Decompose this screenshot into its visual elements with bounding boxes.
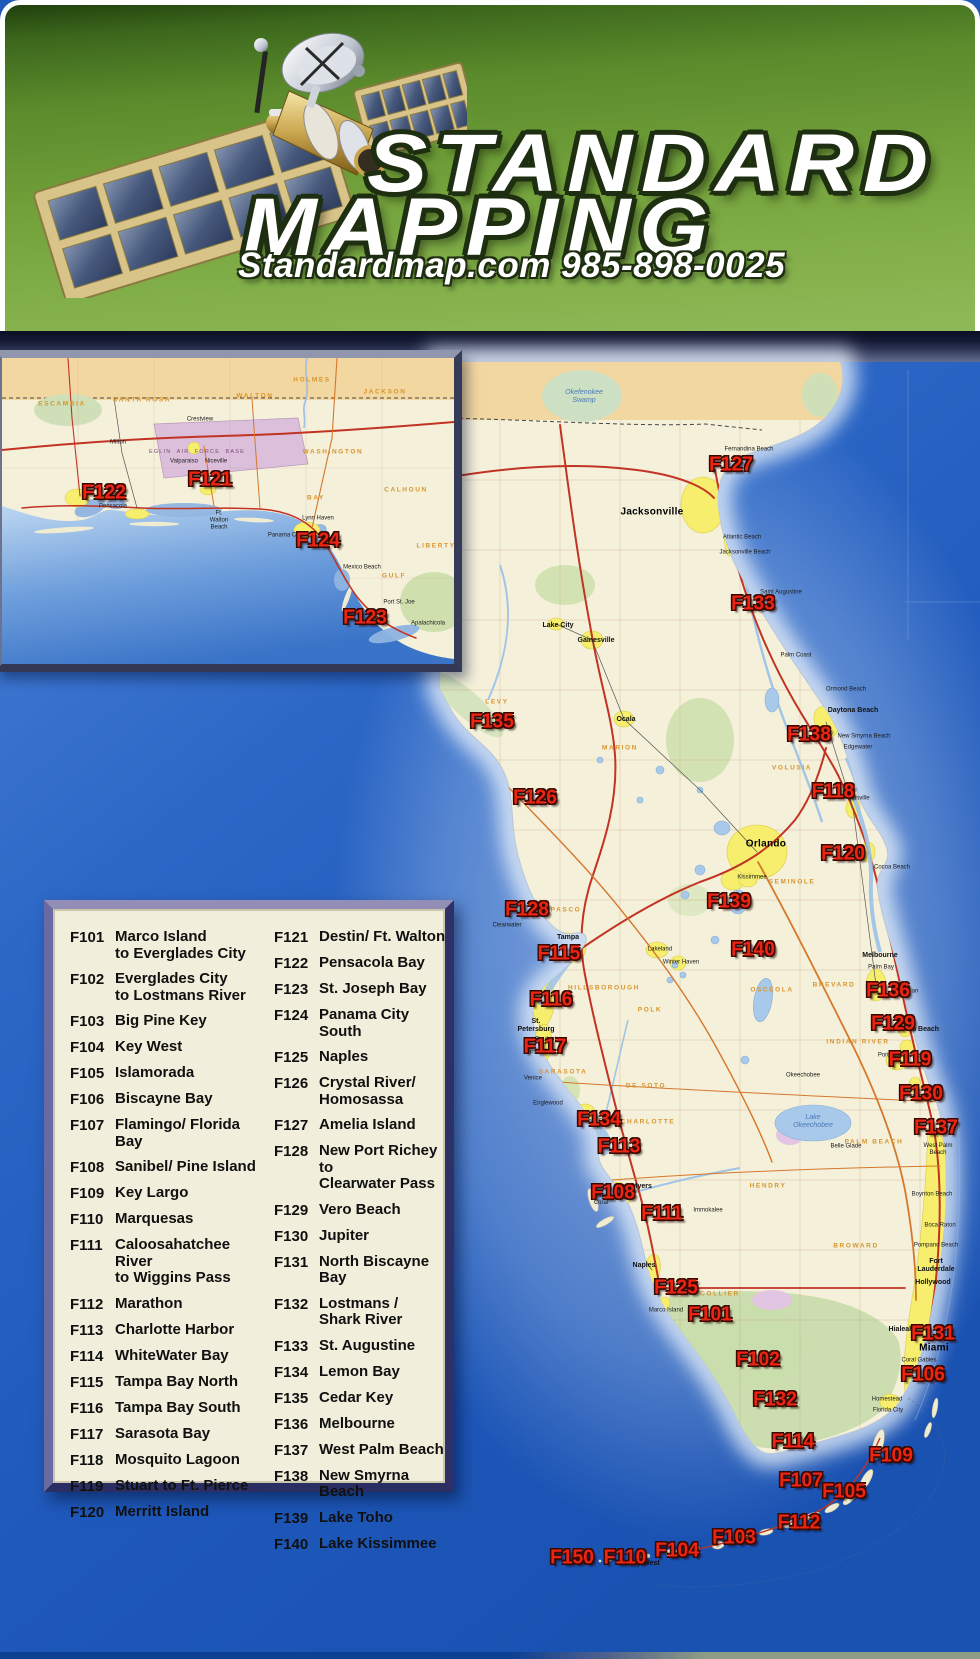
legend-code: F111 — [70, 1237, 115, 1287]
legend-code: F128 — [274, 1143, 319, 1193]
legend-entry-F136: F136Melbourne — [274, 1416, 450, 1433]
legend-name: Sanibel/ Pine Island — [115, 1159, 256, 1176]
map-label-F104[interactable]: F104 — [655, 1540, 699, 1563]
legend-name: Tampa Bay North — [115, 1374, 238, 1391]
legend-name: Amelia Island — [319, 1117, 416, 1134]
legend-name: Charlotte Harbor — [115, 1322, 234, 1339]
legend-name: Jupiter — [319, 1228, 369, 1245]
legend-name: Vero Beach — [319, 1202, 401, 1219]
legend-code: F126 — [274, 1075, 319, 1108]
map-label-F108[interactable]: F108 — [591, 1182, 635, 1205]
legend-entry-F131: F131North Biscayne Bay — [274, 1254, 450, 1287]
legend-entry-F118: F118Mosquito Lagoon — [70, 1452, 260, 1469]
map-label-F140[interactable]: F140 — [731, 939, 775, 962]
legend-name: Panama City South — [319, 1007, 450, 1040]
legend-name: Marco Island to Everglades City — [115, 929, 246, 962]
legend-code: F103 — [70, 1013, 115, 1030]
map-label-F102[interactable]: F102 — [736, 1349, 780, 1372]
legend-name: Lostmans / Shark River — [319, 1296, 402, 1329]
legend-name: Stuart to Ft. Pierce — [115, 1478, 248, 1495]
legend-name: Marathon — [115, 1296, 183, 1313]
legend-entry-F115: F115Tampa Bay North — [70, 1374, 260, 1391]
legend-code: F123 — [274, 981, 319, 998]
map-label-F121[interactable]: F121 — [188, 469, 232, 492]
legend-name: Lake Toho — [319, 1510, 393, 1527]
legend-entry-F122: F122Pensacola Bay — [274, 955, 450, 972]
legend-code: F110 — [70, 1211, 115, 1228]
legend-entry-F130: F130Jupiter — [274, 1228, 450, 1245]
legend-entry-F110: F110Marquesas — [70, 1211, 260, 1228]
page: STANDARD MAPPING Standardmap.com 985-898… — [0, 0, 980, 1659]
legend-entry-F133: F133St. Augustine — [274, 1338, 450, 1355]
legend-name: St. Joseph Bay — [319, 981, 427, 998]
legend-name: Everglades City to Lostmans River — [115, 971, 246, 1004]
map-label-F129[interactable]: F129 — [871, 1013, 915, 1036]
legend-name: Key Largo — [115, 1185, 188, 1202]
legend-entry-F104: F104Key West — [70, 1039, 260, 1056]
map-label-F132[interactable]: F132 — [753, 1389, 797, 1412]
legend-entry-F123: F123St. Joseph Bay — [274, 981, 450, 998]
legend-name: Sarasota Bay — [115, 1426, 210, 1443]
legend-entry-F135: F135Cedar Key — [274, 1390, 450, 1407]
legend-name: Merritt Island — [115, 1504, 209, 1521]
legend-code: F137 — [274, 1442, 319, 1459]
legend-entry-F106: F106Biscayne Bay — [70, 1091, 260, 1108]
legend-code: F108 — [70, 1159, 115, 1176]
map-label-F106[interactable]: F106 — [901, 1364, 945, 1387]
map-label-F111[interactable]: F111 — [641, 1203, 683, 1226]
map-label-F116[interactable]: F116 — [530, 989, 573, 1012]
map-label-F101[interactable]: F101 — [688, 1304, 732, 1327]
legend-code: F101 — [70, 929, 115, 962]
legend-entry-F116: F116Tampa Bay South — [70, 1400, 260, 1417]
legend-code: F117 — [70, 1426, 115, 1443]
bottom-edge-strip — [0, 1652, 980, 1659]
legend-entry-F121: F121Destin/ Ft. Walton — [274, 929, 450, 946]
legend-name: St. Augustine — [319, 1338, 415, 1355]
legend-name: Lemon Bay — [319, 1364, 400, 1381]
legend-code: F136 — [274, 1416, 319, 1433]
legend-name: WhiteWater Bay — [115, 1348, 229, 1365]
legend-name: Tampa Bay South — [115, 1400, 241, 1417]
map-label-F137[interactable]: F137 — [914, 1117, 958, 1140]
legend-code: F124 — [274, 1007, 319, 1040]
legend-entry-F103: F103Big Pine Key — [70, 1013, 260, 1030]
map-label-F133[interactable]: F133 — [731, 593, 775, 616]
legend-code: F122 — [274, 955, 319, 972]
legend-name: Destin/ Ft. Walton — [319, 929, 445, 946]
legend-entry-F140: F140Lake Kissimmee — [274, 1536, 450, 1553]
legend-name: Mosquito Lagoon — [115, 1452, 240, 1469]
legend-name: Lake Kissimmee — [319, 1536, 437, 1553]
legend-code: F115 — [70, 1374, 115, 1391]
legend-code: F129 — [274, 1202, 319, 1219]
legend-entry-F112: F112Marathon — [70, 1296, 260, 1313]
legend-code: F140 — [274, 1536, 319, 1553]
legend-code: F125 — [274, 1049, 319, 1066]
legend-code: F133 — [274, 1338, 319, 1355]
legend-code: F113 — [70, 1322, 115, 1339]
legend-name: Marquesas — [115, 1211, 193, 1228]
legend-code: F127 — [274, 1117, 319, 1134]
map-label-F117[interactable]: F117 — [524, 1036, 567, 1059]
map-label-F126[interactable]: F126 — [513, 787, 557, 810]
legend-entry-F137: F137West Palm Beach — [274, 1442, 450, 1459]
legend-entry-F119: F119Stuart to Ft. Pierce — [70, 1478, 260, 1495]
legend-code: F118 — [70, 1452, 115, 1469]
map-label-F110[interactable]: F110 — [604, 1547, 647, 1570]
legend-code: F130 — [274, 1228, 319, 1245]
legend-name: New Port Richey to Clearwater Pass — [319, 1143, 450, 1193]
legend-code: F119 — [70, 1478, 115, 1495]
legend-entry-F113: F113Charlotte Harbor — [70, 1322, 260, 1339]
legend-name: New Smyrna Beach — [319, 1468, 450, 1501]
map-label-F124[interactable]: F124 — [296, 530, 340, 553]
legend-code: F104 — [70, 1039, 115, 1056]
legend-code: F116 — [70, 1400, 115, 1417]
map-label-F107[interactable]: F107 — [779, 1470, 823, 1493]
legend-name: Caloosahatchee River to Wiggins Pass — [115, 1237, 260, 1287]
map-label-F138[interactable]: F138 — [787, 724, 831, 747]
map-label-F130[interactable]: F130 — [899, 1083, 943, 1106]
map-label-F131[interactable]: F131 — [911, 1323, 955, 1346]
legend-name: North Biscayne Bay — [319, 1254, 450, 1287]
map-label-F125[interactable]: F125 — [654, 1277, 698, 1300]
legend-entry-F134: F134Lemon Bay — [274, 1364, 450, 1381]
map-label-F119[interactable]: F119 — [889, 1049, 932, 1072]
legend-code: F139 — [274, 1510, 319, 1527]
legend-entry-F127: F127Amelia Island — [274, 1117, 450, 1134]
map-label-F109[interactable]: F109 — [869, 1445, 913, 1468]
legend-name: Melbourne — [319, 1416, 395, 1433]
legend-code: F102 — [70, 971, 115, 1004]
legend-code: F131 — [274, 1254, 319, 1287]
map-label-F112[interactable]: F112 — [778, 1512, 821, 1535]
legend-code: F105 — [70, 1065, 115, 1082]
legend-entry-F126: F126Crystal River/ Homosassa — [274, 1075, 450, 1108]
legend-entry-F117: F117Sarasota Bay — [70, 1426, 260, 1443]
legend-entry-F139: F139Lake Toho — [274, 1510, 450, 1527]
legend-entry-F125: F125Naples — [274, 1049, 450, 1066]
legend-name: Islamorada — [115, 1065, 194, 1082]
map-label-F118[interactable]: F118 — [812, 781, 855, 804]
map-label-F136[interactable]: F136 — [866, 980, 910, 1003]
legend-entry-F129: F129Vero Beach — [274, 1202, 450, 1219]
map-label-F115[interactable]: F115 — [538, 943, 581, 966]
map-label-F150[interactable]: F150 — [550, 1547, 594, 1570]
legend-entry-F107: F107Flamingo/ Florida Bay — [70, 1117, 260, 1150]
legend-name: Pensacola Bay — [319, 955, 425, 972]
legend-code: F134 — [274, 1364, 319, 1381]
legend-name: Cedar Key — [319, 1390, 393, 1407]
legend-name: Crystal River/ Homosassa — [319, 1075, 416, 1108]
legend-name: Flamingo/ Florida Bay — [115, 1117, 260, 1150]
legend-name: Biscayne Bay — [115, 1091, 213, 1108]
map-label-F127[interactable]: F127 — [709, 454, 753, 477]
legend-column-left: F101Marco Island to Everglades CityF102E… — [70, 929, 260, 1530]
map-label-F128[interactable]: F128 — [505, 899, 549, 922]
map-label-F139[interactable]: F139 — [707, 891, 751, 914]
legend-code: F120 — [70, 1504, 115, 1521]
legend-code: F121 — [274, 929, 319, 946]
legend-entry-F132: F132Lostmans / Shark River — [274, 1296, 450, 1329]
legend-code: F109 — [70, 1185, 115, 1202]
legend-entry-F101: F101Marco Island to Everglades City — [70, 929, 260, 962]
legend-code: F138 — [274, 1468, 319, 1501]
legend-entry-F120: F120Merritt Island — [70, 1504, 260, 1521]
legend-code: F106 — [70, 1091, 115, 1108]
legend-name: West Palm Beach — [319, 1442, 444, 1459]
legend-entry-F114: F114WhiteWater Bay — [70, 1348, 260, 1365]
legend-box: F101Marco Island to Everglades CityF102E… — [44, 900, 454, 1492]
legend-name: Big Pine Key — [115, 1013, 207, 1030]
map-label-F113[interactable]: F113 — [598, 1136, 641, 1159]
legend-entry-F124: F124Panama City South — [274, 1007, 450, 1040]
legend-name: Naples — [319, 1049, 368, 1066]
map-label-F122[interactable]: F122 — [82, 482, 126, 505]
legend-code: F132 — [274, 1296, 319, 1329]
legend-code: F135 — [274, 1390, 319, 1407]
legend-column-right: F121Destin/ Ft. WaltonF122Pensacola BayF… — [274, 929, 450, 1562]
legend-code: F107 — [70, 1117, 115, 1150]
legend-entry-F111: F111Caloosahatchee River to Wiggins Pass — [70, 1237, 260, 1287]
legend-entry-F108: F108Sanibel/ Pine Island — [70, 1159, 260, 1176]
legend-entry-F128: F128New Port Richey to Clearwater Pass — [274, 1143, 450, 1193]
legend-code: F114 — [70, 1348, 115, 1365]
map-label-F103[interactable]: F103 — [712, 1527, 756, 1550]
map-label-F135[interactable]: F135 — [470, 711, 514, 734]
legend-entry-F105: F105Islamorada — [70, 1065, 260, 1082]
legend-name: Key West — [115, 1039, 182, 1056]
map-label-F120[interactable]: F120 — [821, 843, 865, 866]
map-label-F123[interactable]: F123 — [343, 607, 387, 630]
map-label-F105[interactable]: F105 — [822, 1481, 866, 1504]
map-label-F134[interactable]: F134 — [577, 1109, 621, 1132]
legend-code: F112 — [70, 1296, 115, 1313]
map-label-F114[interactable]: F114 — [772, 1431, 815, 1454]
legend-entry-F109: F109Key Largo — [70, 1185, 260, 1202]
legend-entry-F102: F102Everglades City to Lostmans River — [70, 971, 260, 1004]
legend-entry-F138: F138New Smyrna Beach — [274, 1468, 450, 1501]
